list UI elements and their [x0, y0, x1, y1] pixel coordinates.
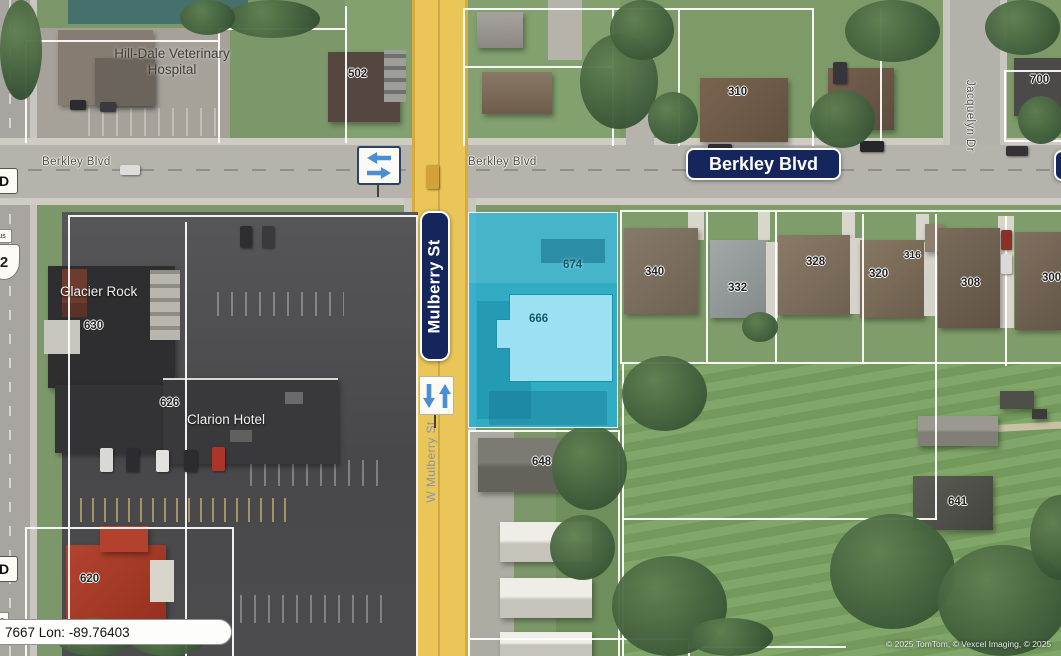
car	[100, 102, 116, 112]
shed	[477, 12, 523, 48]
rooftop-units	[285, 392, 303, 404]
tree	[742, 312, 778, 342]
parcel-number-620: 620	[80, 573, 99, 585]
car	[212, 447, 225, 471]
coordinates-readout: 7667 Lon: -89.76403	[0, 619, 232, 645]
parcel-number-340: 340	[645, 266, 664, 278]
map-canvas[interactable]: 674 666 502 310 700 340 332 328 320 316 …	[0, 0, 1061, 656]
sidewalk	[0, 138, 1061, 145]
parcel-line	[1004, 70, 1006, 140]
parcel-number-641: 641	[948, 496, 967, 508]
parcel-number-300: 300	[1042, 272, 1061, 284]
car	[240, 226, 252, 248]
tree	[830, 514, 955, 629]
selected-parcel-number: 674	[563, 259, 582, 271]
tree	[688, 618, 773, 656]
tree	[622, 356, 707, 431]
building	[55, 385, 163, 453]
parcel-line	[416, 215, 418, 656]
parcel-line	[185, 222, 187, 656]
road-label-berkley-center: Berkley Blvd	[468, 156, 537, 168]
storage-building	[500, 578, 592, 618]
tree	[225, 0, 320, 38]
parcel-number-308: 308	[961, 277, 980, 289]
parcel-line	[1004, 70, 1061, 72]
vet-hospital-label-line2: Hospital	[88, 62, 256, 78]
building-620	[100, 526, 148, 552]
tree	[610, 0, 674, 60]
walkway	[150, 560, 174, 602]
vet-hospital-label: Hill-Dale Veterinary Hospital	[88, 46, 256, 78]
clarion-hotel-label: Clarion Hotel	[187, 412, 265, 427]
street-sign-mulberry: Mulberry St	[420, 211, 450, 361]
selected-building-footprint[interactable]	[509, 294, 613, 382]
tree	[180, 0, 235, 35]
car	[120, 165, 140, 175]
parcel-line	[620, 210, 1061, 212]
car	[426, 165, 439, 189]
car	[156, 450, 169, 472]
street-sign-berkley-partial: Berkley Blvd	[1054, 150, 1061, 181]
house-332	[710, 240, 768, 318]
building	[44, 320, 80, 354]
sign-post	[377, 183, 379, 197]
tree	[648, 92, 698, 144]
d-road-marker-top: D	[0, 168, 18, 194]
two-way-arrow-sign-vertical	[419, 376, 454, 415]
sidewalk	[30, 0, 37, 656]
highlight-texture	[489, 391, 607, 425]
parcel-number-700: 700	[1030, 74, 1049, 86]
parcel-line	[68, 215, 70, 648]
tree	[810, 90, 875, 148]
parcel-number-316: 316	[904, 250, 921, 261]
parking-stripes	[217, 292, 344, 316]
street-sign-berkley: Berkley Blvd	[686, 148, 841, 180]
parcel-line	[935, 364, 937, 520]
parcel-line	[68, 215, 416, 217]
tree	[845, 0, 940, 62]
road-label-berkley-left: Berkley Blvd	[42, 156, 111, 168]
vet-hospital-label-line1: Hill-Dale Veterinary	[88, 46, 256, 62]
parking-stripes	[240, 595, 390, 623]
left-arrow-icon	[366, 152, 392, 164]
parcel-number-648: 648	[532, 456, 551, 468]
car	[1006, 146, 1028, 156]
d-road-marker-bottom: D	[0, 556, 18, 582]
glacier-rock-label: Glacier Rock	[60, 284, 137, 299]
car	[100, 448, 113, 472]
two-way-arrow-sign-horizontal	[357, 146, 401, 185]
parcel-line	[775, 212, 777, 362]
selected-building-number: 666	[529, 313, 548, 325]
parcel-number-328: 328	[806, 256, 825, 268]
parcel-line	[862, 214, 864, 364]
parcel-line	[706, 212, 708, 362]
parcel-number-502: 502	[348, 68, 367, 80]
down-arrow-icon	[423, 383, 435, 409]
rooftop-units	[150, 270, 180, 340]
car	[262, 226, 274, 248]
road-centerline	[0, 169, 1061, 171]
us-route-caption-top: us	[0, 229, 12, 243]
car	[126, 448, 139, 472]
up-arrow-icon	[439, 383, 451, 409]
parcel-line	[232, 527, 234, 656]
car	[833, 62, 847, 84]
house-328	[778, 235, 850, 315]
car	[184, 450, 197, 472]
parcel-line	[935, 214, 937, 364]
map-attribution: © 2025 TomTom, © Vexcel Imaging, © 2025	[886, 639, 1061, 649]
road-label-w-mulberry: W Mulberry St	[424, 414, 438, 510]
road-label-jacquelyn: Jacquelyn Dr	[964, 73, 976, 159]
car	[1001, 230, 1012, 250]
sidewalk	[0, 198, 1061, 205]
parcel-number-332: 332	[728, 282, 747, 294]
parcel-line	[468, 430, 470, 656]
road-berkley	[0, 145, 1061, 198]
house	[482, 72, 552, 114]
tree	[0, 0, 42, 100]
car	[1001, 254, 1012, 274]
rooftop-units	[230, 430, 252, 442]
storage-building	[500, 632, 592, 656]
parcel-number-626: 626	[160, 397, 179, 409]
tree	[550, 515, 615, 580]
tree	[1018, 96, 1061, 144]
selected-building-footprint	[496, 319, 510, 349]
parcel-number-310: 310	[728, 86, 747, 98]
car	[860, 141, 884, 152]
driveway	[758, 212, 770, 240]
parcel-number-320: 320	[869, 268, 888, 280]
parcel-line	[25, 40, 218, 42]
rooftop-units	[384, 50, 406, 102]
parcel-line	[463, 8, 465, 146]
parcel-number-630: 630	[84, 320, 103, 332]
sign-post	[434, 414, 436, 428]
parcel-line	[25, 527, 232, 529]
parking-stripes	[88, 108, 218, 136]
shed	[1000, 391, 1034, 409]
car	[70, 100, 86, 110]
street-sign-berkley-text: Berkley Blvd	[709, 154, 818, 175]
right-arrow-icon	[366, 167, 392, 179]
selected-parcel-overlay[interactable]: 674 666	[468, 212, 618, 428]
parcel-line	[620, 210, 622, 362]
tree	[985, 0, 1060, 55]
sidewalk	[943, 0, 950, 145]
shed	[918, 416, 998, 446]
tree	[552, 425, 627, 510]
street-sign-mulberry-text: Mulberry St	[426, 239, 445, 333]
parcel-line	[345, 6, 347, 143]
shed	[1032, 409, 1047, 419]
